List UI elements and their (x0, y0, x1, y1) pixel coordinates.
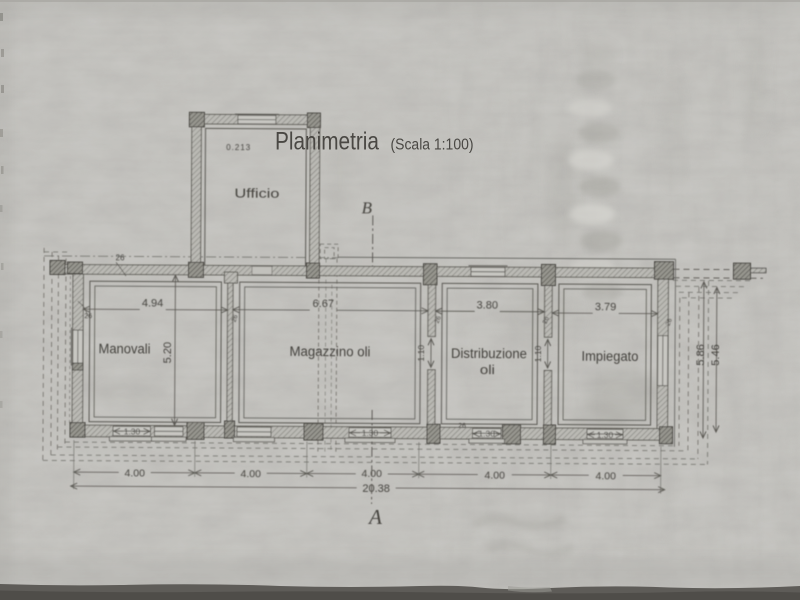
svg-text:A: A (367, 505, 382, 529)
svg-text:26: 26 (458, 423, 466, 430)
svg-text:Magazzino oli: Magazzino oli (289, 344, 370, 359)
svg-text:Ufficio: Ufficio (234, 186, 279, 201)
svg-text:4.00: 4.00 (595, 470, 616, 482)
svg-text:1.10: 1.10 (533, 345, 543, 362)
svg-text:3.80: 3.80 (477, 299, 498, 311)
svg-text:4.94: 4.94 (142, 298, 163, 310)
svg-text:oli: oli (480, 362, 495, 377)
svg-text:B: B (362, 198, 373, 217)
svg-text:1.30: 1.30 (362, 428, 379, 438)
svg-text:Impiegato: Impiegato (581, 349, 638, 364)
svg-text:20.38: 20.38 (362, 483, 390, 495)
svg-text:6.67: 6.67 (313, 298, 334, 310)
svg-text:5.20: 5.20 (162, 342, 174, 363)
svg-text:Distribuzione: Distribuzione (451, 346, 527, 361)
svg-text:26: 26 (116, 253, 126, 262)
svg-text:4.00: 4.00 (240, 468, 261, 480)
svg-text:(Scala 1:100): (Scala 1:100) (391, 137, 474, 154)
svg-text:1.30: 1.30 (478, 429, 495, 439)
svg-text:4.00: 4.00 (124, 467, 145, 479)
svg-text:4.00: 4.00 (484, 470, 505, 482)
svg-text:1.30: 1.30 (124, 426, 141, 436)
svg-text:1.10: 1.10 (416, 345, 426, 362)
svg-text:5.46: 5.46 (710, 344, 722, 365)
svg-text:1.30: 1.30 (597, 430, 614, 440)
svg-text:26: 26 (84, 313, 92, 320)
svg-text:Planimetria: Planimetria (275, 128, 379, 156)
svg-text:5.86: 5.86 (695, 344, 707, 365)
svg-text:Manovali: Manovali (98, 341, 150, 356)
svg-text:0.213: 0.213 (226, 143, 251, 152)
svg-text:3.79: 3.79 (595, 301, 616, 313)
